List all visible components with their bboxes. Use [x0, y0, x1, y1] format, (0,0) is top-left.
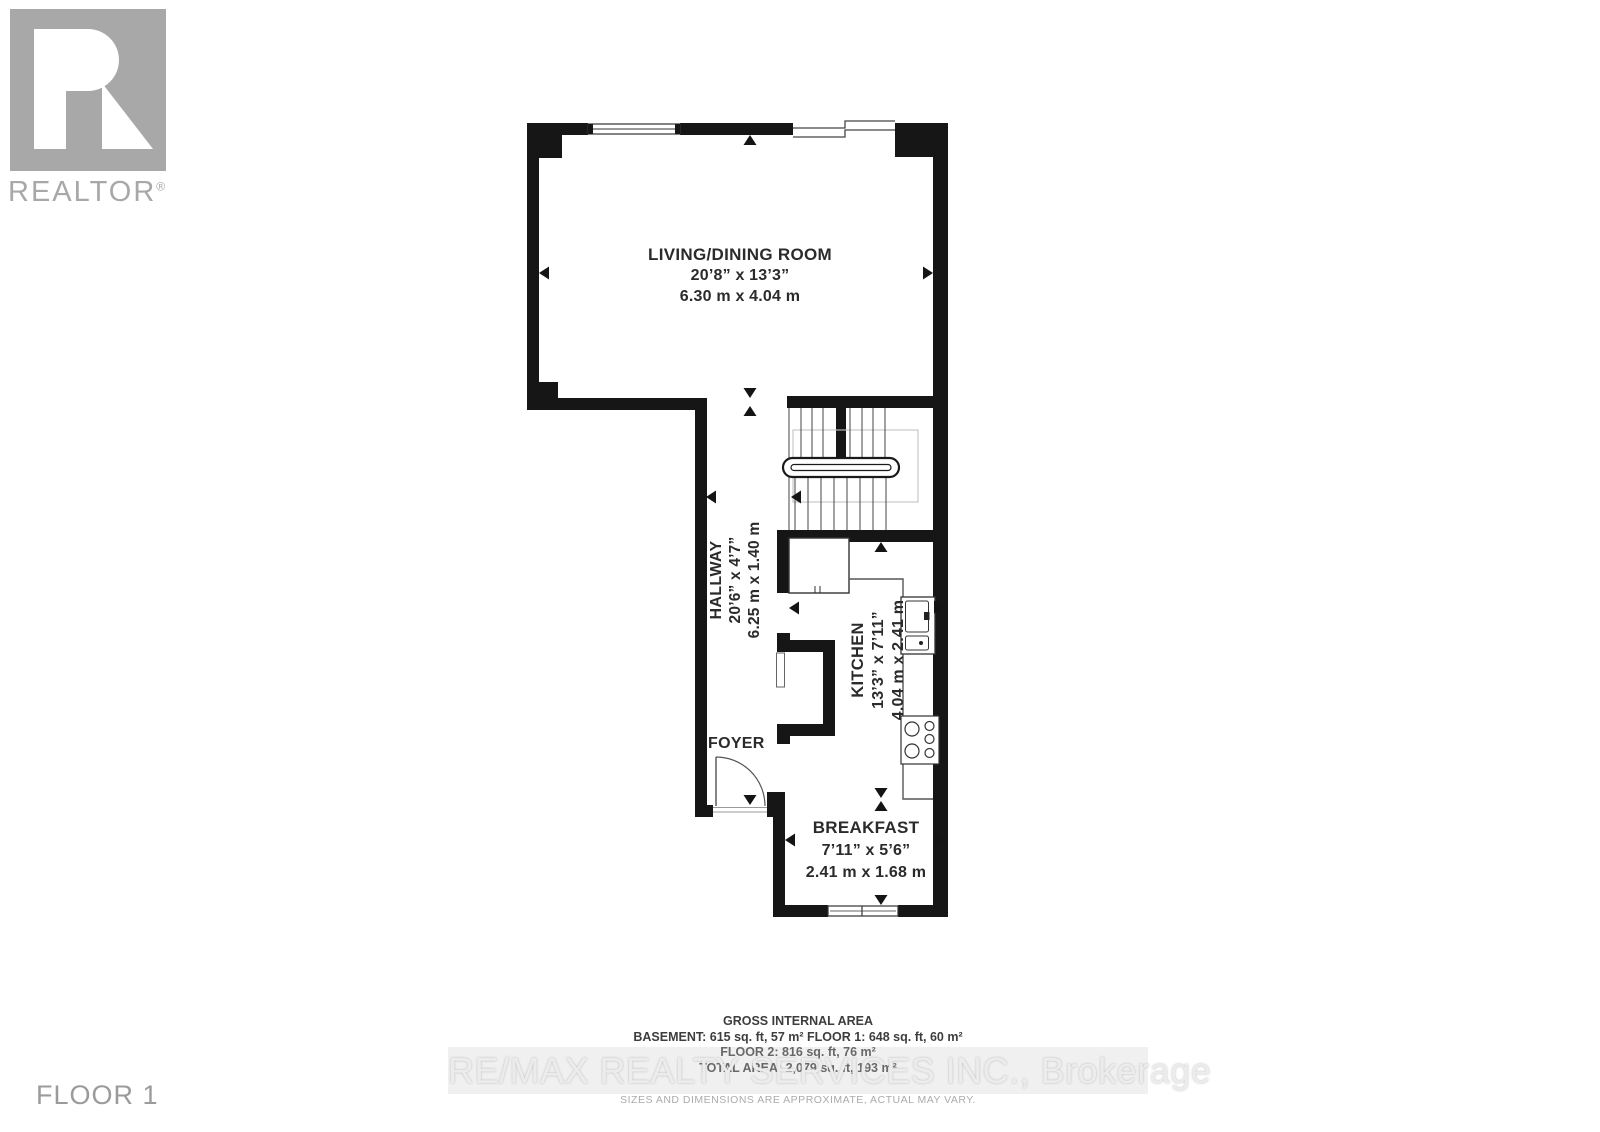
room-dim-imperial: 20’6” x 4’7” — [726, 537, 745, 624]
entry-door-swing-arc — [716, 757, 765, 806]
dim-arrow-down-entry-door — [744, 795, 757, 805]
dim-arrow-down-breakfast-bottom — [875, 895, 888, 905]
room-name: KITCHEN — [848, 622, 869, 697]
wall-top-mid-segment — [680, 123, 793, 135]
dim-arrow-down-living-bottom — [744, 388, 757, 398]
floor-label: FLOOR 1 — [36, 1080, 159, 1111]
opening-top-right-upper-line — [793, 121, 895, 128]
wall-living-bottom — [527, 398, 707, 410]
disclaimer-text: SIZES AND DIMENSIONS ARE APPROXIMATE, AC… — [498, 1094, 1098, 1106]
closet — [789, 538, 849, 593]
dim-arrow-right-living — [923, 267, 933, 280]
wall-hallway-left — [695, 398, 707, 817]
area-summary-basement-floor1: BASEMENT: 615 sq. ft, 57 m² FLOOR 1: 648… — [498, 1030, 1098, 1046]
room-name: HALLWAY — [707, 541, 726, 620]
label-kitchen: KITCHEN 13’3” x 7’11” 4.04 m x 2.41 m — [848, 545, 910, 775]
room-dim-imperial: 13’3” x 7’11” — [869, 611, 890, 709]
room-name: BREAKFAST — [813, 817, 920, 840]
label-foyer: FOYER — [708, 735, 788, 753]
wall-bottom-right-segment — [898, 905, 948, 917]
opening-top-right-lower-line — [793, 130, 895, 137]
room-name: LIVING/DINING ROOM — [648, 244, 832, 265]
label-hallway: HALLWAY 20’6” x 4’7” 6.25 m x 1.40 m — [707, 470, 765, 690]
room-dim-imperial: 7’11” x 5’6” — [822, 840, 911, 863]
wall-foyer-bottom — [695, 805, 713, 817]
room-dim-imperial: 20’8” x 13’3” — [691, 265, 790, 286]
dim-arrow-up-hallway-top — [744, 406, 757, 416]
dim-arrow-down-kitchen-bottom — [875, 788, 888, 798]
room-dim-metric: 6.25 m x 1.40 m — [745, 522, 764, 639]
sink-faucet — [924, 612, 930, 620]
stove-burner — [925, 749, 934, 758]
room-dim-metric: 2.41 m x 1.68 m — [806, 862, 926, 885]
wall-right — [933, 135, 948, 917]
label-living-dining: LIVING/DINING ROOM 20’8” x 13’3” 6.30 m … — [570, 244, 910, 307]
closet-box — [789, 538, 849, 593]
brokerage-watermark: RE/MAX REALTY SERVICES INC., Brokerage — [448, 1047, 1148, 1094]
wall-pantry-right — [823, 640, 835, 736]
room-dim-metric: 6.30 m x 4.04 m — [680, 286, 800, 307]
window-top-cap-right — [675, 124, 680, 134]
stairs — [783, 408, 918, 530]
sink-drain — [919, 641, 923, 645]
dim-arrow-up-living-top — [744, 135, 757, 145]
area-summary-title: GROSS INTERNAL AREA — [498, 1014, 1098, 1030]
stove-burner — [925, 722, 934, 731]
wall-left — [527, 123, 539, 410]
pantry-door — [777, 653, 785, 687]
label-breakfast: BREAKFAST 7’11” x 5’6” 2.41 m x 1.68 m — [716, 817, 1016, 885]
dim-arrow-left-kitchen — [789, 602, 799, 615]
dim-arrow-up-breakfast-top — [875, 801, 888, 811]
floorplan-page: REALTOR® — [0, 0, 1600, 1132]
wall-stair-top — [787, 396, 933, 408]
stair-railing — [783, 458, 899, 477]
entry-door — [713, 757, 767, 812]
dim-arrow-left-living — [539, 267, 549, 280]
wall-closet-left — [777, 542, 789, 593]
room-dim-metric: 4.04 m x 2.41 m — [889, 600, 910, 720]
stove-burner — [925, 735, 934, 744]
wall-bottom-left-segment — [773, 905, 828, 917]
window-top-cap-left — [588, 124, 593, 134]
